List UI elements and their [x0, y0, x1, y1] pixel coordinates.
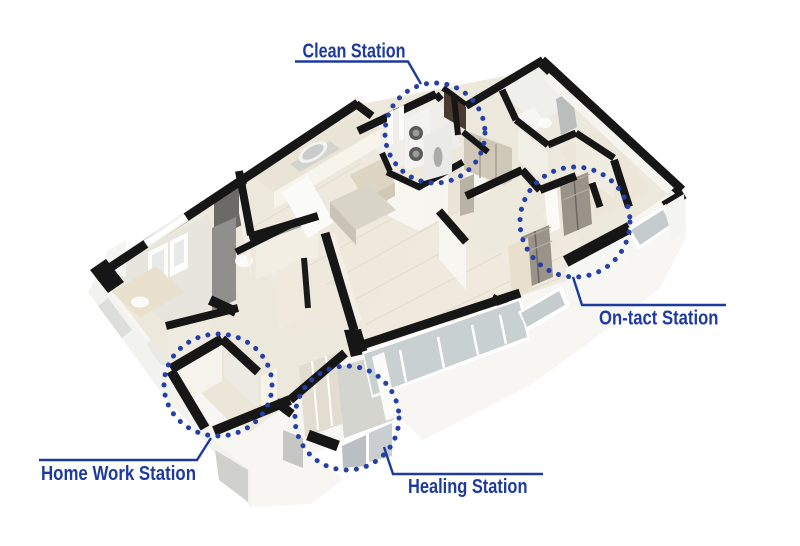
svg-text:Healing Station: Healing Station [408, 476, 528, 498]
svg-text:On-tact Station: On-tact Station [599, 308, 719, 330]
svg-text:Home Work Station: Home Work Station [41, 463, 196, 485]
svg-text:Clean Station: Clean Station [303, 41, 406, 63]
